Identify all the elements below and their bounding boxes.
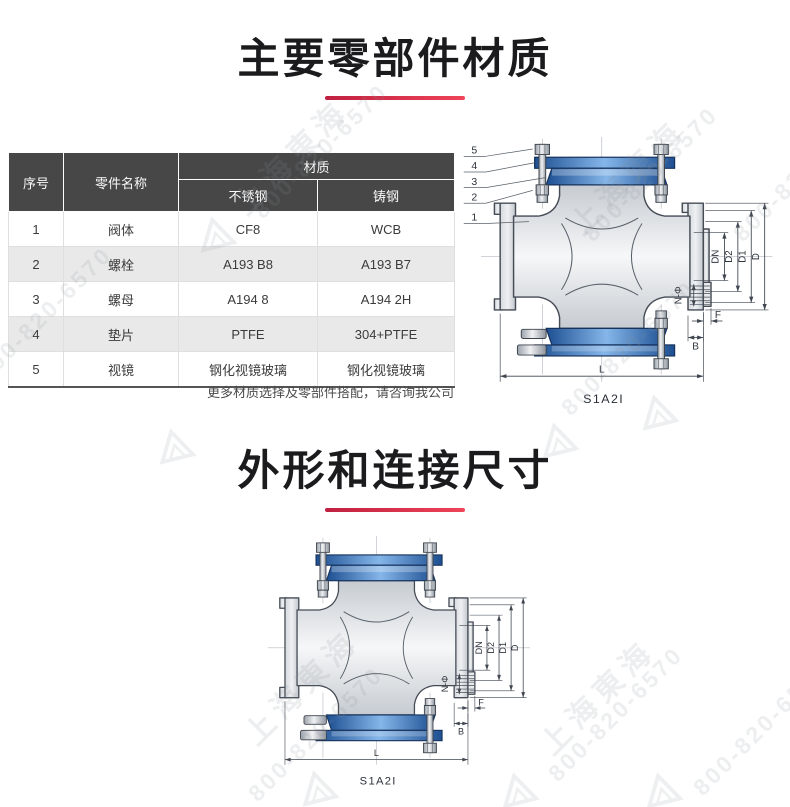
- table-cell-no: 1: [9, 212, 64, 247]
- table-cell-cs: 304+PTFE: [318, 317, 455, 352]
- dim-label-f: F: [478, 697, 484, 707]
- dim-label-d1: D1: [737, 250, 748, 262]
- table-note: 更多材质选择及零部件搭配，请咨询我公司: [8, 382, 454, 401]
- dim-label-d2: D2: [486, 642, 496, 654]
- table-cell-part: 阀体: [64, 212, 179, 247]
- valve-drawing-dimensions: DND2D1DN-ΦFBLS1A2I: [247, 536, 537, 794]
- dim-label-d: D: [510, 644, 520, 651]
- table-cell-part: 螺栓: [64, 247, 179, 282]
- section1-title: 主要零部件材质: [0, 36, 790, 82]
- dim-label-b: B: [692, 342, 699, 353]
- col-header-stainless: 不锈钢: [179, 180, 318, 212]
- dim-label-dn: DN: [711, 250, 722, 264]
- dim-label-d2: D2: [724, 250, 735, 262]
- section2-title: 外形和连接尺寸: [0, 448, 790, 494]
- table-cell-ss: A193 B8: [179, 247, 318, 282]
- table-cell-cs: WCB: [318, 212, 455, 247]
- dim-label-l: L: [599, 365, 605, 376]
- valve-drawing-materials: 54321DND2D1DN-ΦFBLS1A2I: [458, 137, 780, 413]
- callout-number: 2: [471, 193, 477, 204]
- col-header-cast: 铸钢: [318, 180, 455, 212]
- callout-number: 1: [471, 213, 477, 224]
- col-header-part: 零件名称: [64, 153, 179, 212]
- table-cell-ss: PTFE: [179, 317, 318, 352]
- callout-number: 5: [471, 146, 477, 157]
- valve-cross-section-icon: 54321DND2D1DN-ΦFBLS1A2I: [458, 137, 780, 413]
- page: 主要零部件材质 序号 零件名称 材质 不锈钢 铸钢 1阀体CF8WCB2螺栓A1…: [0, 0, 790, 807]
- valve-cross-section-icon: DND2D1DN-ΦFBLS1A2I: [247, 536, 537, 794]
- col-header-no: 序号: [9, 153, 64, 212]
- brand-watermark-text: 上海東海: [528, 627, 664, 763]
- dim-label-d1: D1: [498, 642, 508, 654]
- table-cell-part: 螺母: [64, 282, 179, 317]
- materials-table: 序号 零件名称 材质 不锈钢 铸钢 1阀体CF8WCB2螺栓A193 B8A19…: [8, 152, 455, 388]
- phone-watermark-text: 800-820-6570: [543, 641, 689, 787]
- callout-number: 4: [471, 161, 477, 172]
- table-cell-no: 2: [9, 247, 64, 282]
- dim-label-nphi: N-Φ: [440, 676, 450, 693]
- dim-label-f: F: [715, 310, 721, 321]
- table-cell-cs: A193 B7: [318, 247, 455, 282]
- table-cell-ss: A194 8: [179, 282, 318, 317]
- title-underline-1: [325, 96, 465, 100]
- table-cell-ss: CF8: [179, 212, 318, 247]
- table-row: 2螺栓A193 B8A193 B7: [9, 247, 455, 282]
- dim-label-d: D: [751, 253, 762, 260]
- phone-watermark-text: 800-820-6570: [688, 655, 790, 801]
- table-cell-cs: A194 2H: [318, 282, 455, 317]
- col-header-material: 材质: [179, 153, 455, 180]
- dim-label-l: L: [374, 748, 379, 758]
- dim-label-nphi: N-Φ: [673, 286, 684, 304]
- table-cell-no: 3: [9, 282, 64, 317]
- dim-label-b: B: [458, 727, 464, 737]
- table-row: 4垫片PTFE304+PTFE: [9, 317, 455, 352]
- brand-logo-watermark: [638, 768, 686, 807]
- materials-table-wrap: 序号 零件名称 材质 不锈钢 铸钢 1阀体CF8WCB2螺栓A193 B8A19…: [8, 152, 454, 388]
- table-row: 1阀体CF8WCB: [9, 212, 455, 247]
- callout-number: 3: [471, 177, 477, 188]
- model-label: S1A2I: [583, 392, 624, 406]
- model-label: S1A2I: [360, 776, 397, 788]
- table-cell-part: 垫片: [64, 317, 179, 352]
- brand-logo-icon: [638, 768, 685, 807]
- table-row: 3螺母A194 8A194 2H: [9, 282, 455, 317]
- table-cell-no: 4: [9, 317, 64, 352]
- dim-label-dn: DN: [474, 641, 484, 654]
- title-underline-2: [325, 508, 465, 512]
